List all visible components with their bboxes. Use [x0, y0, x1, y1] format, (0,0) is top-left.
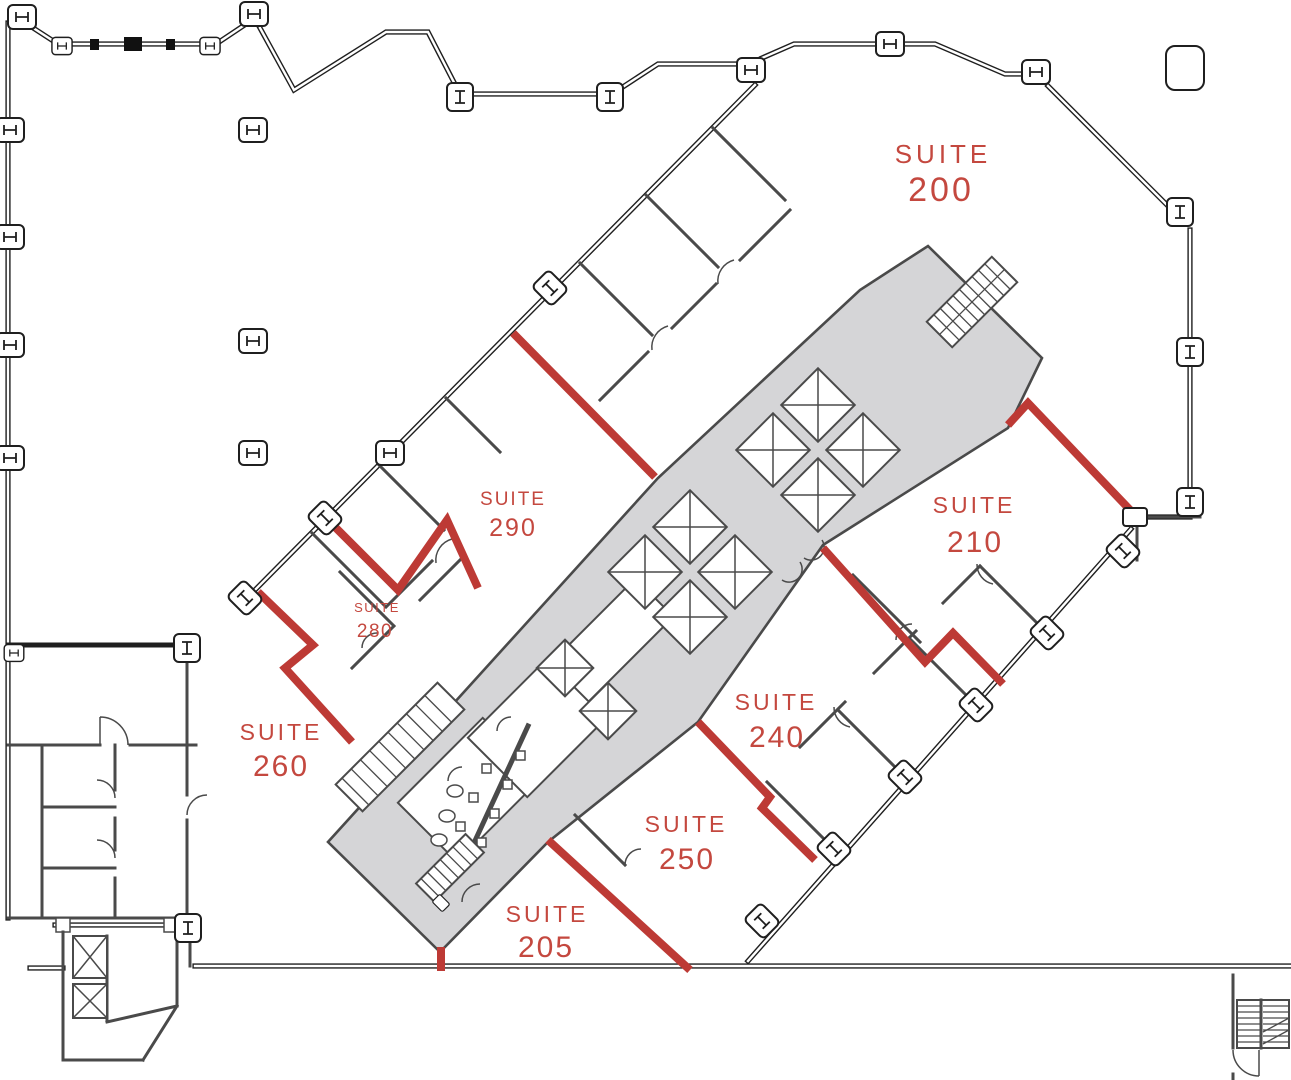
- column-marker-icon: [447, 83, 473, 111]
- mullion: [90, 39, 99, 50]
- demising-wall-suite-210-200: [1008, 403, 1133, 513]
- suite-290-number: 290: [489, 514, 537, 542]
- suite-280-label: SUITE: [354, 600, 400, 615]
- column-marker-icon: [0, 446, 24, 470]
- suite-280-number: 280: [357, 621, 393, 642]
- suite-250-number: 250: [659, 843, 715, 876]
- demising-wall-suite-290-280: [333, 520, 478, 590]
- column-marker-icon: [876, 32, 904, 56]
- column-marker-icon: [239, 329, 267, 353]
- suite-210-label: SUITE: [933, 492, 1016, 518]
- suite-260-number: 260: [253, 750, 309, 783]
- column-marker-icon: [239, 441, 267, 465]
- demising-wall-suite-290-200: [513, 333, 655, 477]
- floor-plan: SUITE 200 SUITE 290 SUITE 280 SUITE 260 …: [0, 0, 1291, 1080]
- column-marker-icon: [175, 914, 201, 942]
- column-marker-icon: [52, 37, 72, 54]
- suite-260-label: SUITE: [240, 719, 323, 745]
- column-marker-icon: [1177, 338, 1203, 366]
- column-marker-icon: [0, 333, 24, 357]
- column-marker-icon: [376, 441, 404, 465]
- column-marker-icon: [737, 58, 765, 82]
- freestanding-column: [1166, 46, 1204, 90]
- suite-240-number: 240: [749, 721, 805, 754]
- column-marker-icon: [0, 118, 24, 142]
- mullion: [124, 37, 142, 51]
- column-marker-icon: [1022, 60, 1050, 84]
- column-marker-icon: [532, 270, 569, 307]
- column-marker-icon: [8, 5, 36, 29]
- freight-elevator: [55, 918, 195, 1060]
- column-marker-icon: [597, 83, 623, 111]
- column-marker-icon: [239, 118, 267, 142]
- suite-240-label: SUITE: [735, 689, 818, 715]
- suite-290-label: SUITE: [480, 489, 546, 510]
- suite-205-number: 205: [518, 931, 574, 964]
- column-marker-icon: [0, 225, 24, 249]
- column-marker-icon: [1167, 198, 1193, 226]
- column-marker-icon: [200, 37, 220, 54]
- suite-200-number: 200: [908, 171, 974, 209]
- column-marker-icon: [174, 634, 200, 662]
- column-markers: [0, 2, 1204, 942]
- exit-stair: [1233, 975, 1289, 1080]
- column-marker-icon: [1123, 508, 1147, 526]
- suite-250-label: SUITE: [645, 811, 728, 837]
- mullion: [166, 39, 175, 50]
- column-marker-icon: [1177, 488, 1203, 516]
- suite-210-number: 210: [947, 526, 1003, 559]
- suite-205-label: SUITE: [506, 901, 589, 927]
- column-marker-icon: [240, 2, 268, 26]
- column-marker-icon: [4, 645, 24, 662]
- floor-plan-canvas: SUITE 200 SUITE 290 SUITE 280 SUITE 260 …: [0, 0, 1291, 1080]
- suite-200-label: SUITE: [895, 139, 992, 169]
